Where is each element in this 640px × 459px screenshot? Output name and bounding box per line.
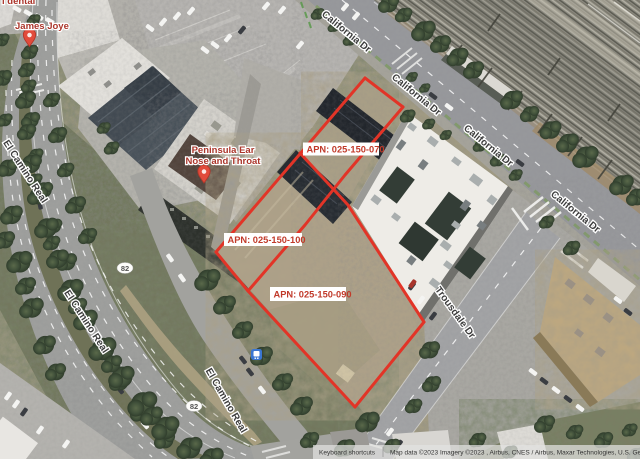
svg-text:Nose and Throat: Nose and Throat (186, 156, 262, 167)
svg-text:82: 82 (121, 264, 129, 273)
svg-text:l dental: l dental (2, 0, 35, 7)
svg-text:Keyboard shortcuts: Keyboard shortcuts (319, 450, 376, 457)
svg-text:Peninsula Ear: Peninsula Ear (192, 145, 255, 156)
svg-text:James Joye: James Joye (15, 21, 69, 32)
svg-text:APN: 025-150-090: APN: 025-150-090 (274, 290, 352, 300)
svg-text:APN: 025-150-070: APN: 025-150-070 (307, 145, 385, 155)
svg-text:Map data ©2023 Imagery ©2023 ,: Map data ©2023 Imagery ©2023 , Airbus, C… (390, 449, 640, 457)
svg-text:82: 82 (190, 402, 198, 411)
svg-text:APN: 025-150-100: APN: 025-150-100 (228, 235, 306, 245)
